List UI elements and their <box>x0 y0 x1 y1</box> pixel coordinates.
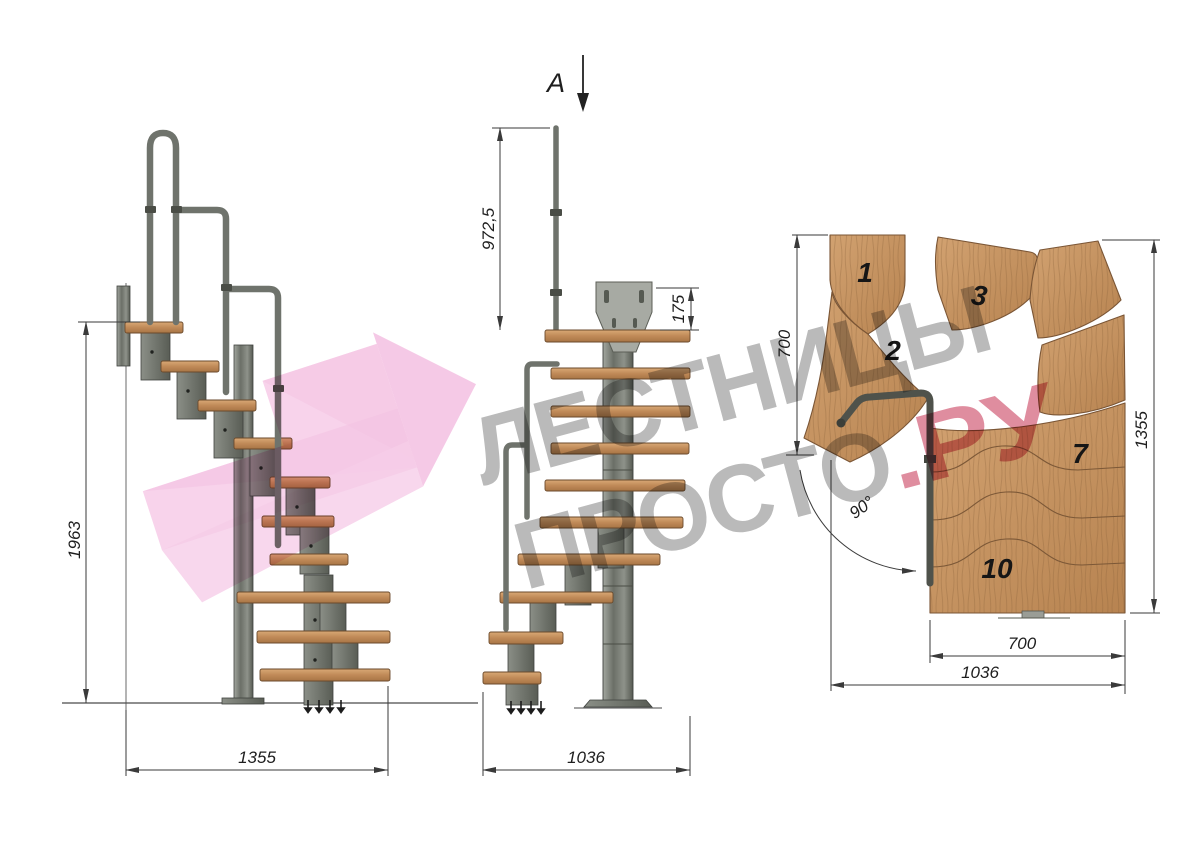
tread-label-10: 10 <box>981 553 1013 584</box>
dim-side-length-label: 1355 <box>238 748 276 767</box>
dim-plan-run-width-label: 700 <box>1008 634 1037 653</box>
section-arrow-icon <box>577 93 589 112</box>
dim-side-height: 1963 <box>65 322 140 703</box>
dim-front-plate-label: 175 <box>669 294 688 323</box>
dim-front-rail-height: 972,5 <box>479 128 550 330</box>
handrail-loop <box>150 133 176 322</box>
staircase-technical-drawing: 1963 1355 A <box>0 0 1200 849</box>
section-label: A <box>545 68 565 98</box>
dim-front-plate: 175 <box>656 288 699 330</box>
dim-plan-height-label: 1355 <box>1132 411 1151 449</box>
dim-side-height-label: 1963 <box>65 521 84 559</box>
center-post-base-flange <box>222 698 264 704</box>
tread-label-7: 7 <box>1072 438 1089 469</box>
drawing-canvas: 1963 1355 A <box>0 0 1200 849</box>
dim-front-rail-height-label: 972,5 <box>479 207 498 250</box>
section-mark: A <box>545 55 589 112</box>
plan-base-plate <box>1022 611 1044 618</box>
dim-front-width-label: 1036 <box>567 748 605 767</box>
tread-label-1: 1 <box>857 257 873 288</box>
column-base-flange <box>584 700 652 707</box>
dim-plan-overall-width-label: 1036 <box>961 663 999 682</box>
dim-plan-run-width: 700 <box>930 620 1125 694</box>
